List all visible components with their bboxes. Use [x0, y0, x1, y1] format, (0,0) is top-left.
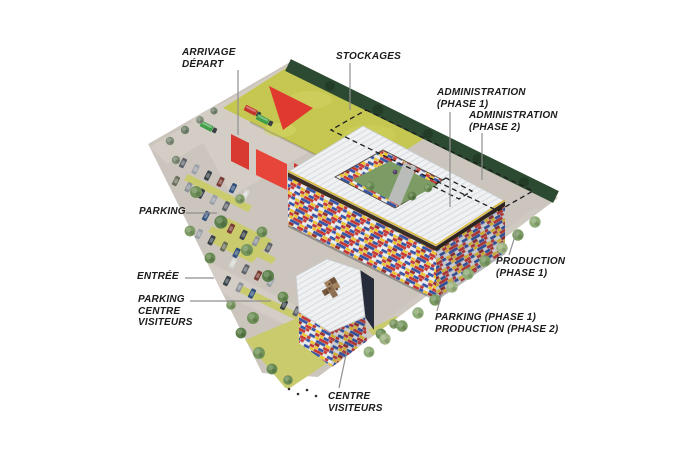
label-centre-visiteurs: CENTRE VISITEURS — [328, 391, 383, 414]
label-entree: ENTRÉE — [137, 271, 179, 283]
tree-icon — [408, 192, 417, 201]
tree-icon — [210, 107, 217, 114]
tree-icon — [479, 255, 490, 266]
tree-icon — [278, 292, 289, 303]
tree-icon — [267, 364, 278, 375]
tree-icon — [185, 226, 196, 237]
tree-icon — [364, 347, 375, 358]
tree-icon — [196, 116, 204, 124]
tree-icon — [462, 268, 473, 279]
tree-icon — [424, 184, 432, 192]
tree-icon — [214, 215, 227, 228]
tree-icon — [412, 307, 423, 318]
tree-icon — [253, 347, 265, 359]
tree-icon — [262, 270, 274, 282]
tree-icon — [379, 333, 390, 344]
label-parking: PARKING — [139, 206, 186, 218]
tree-icon — [393, 170, 398, 175]
tree-icon — [247, 312, 259, 324]
tree-icon — [205, 253, 216, 264]
label-production-phase1: PRODUCTION (PHASE 1) — [496, 256, 565, 279]
tree-icon — [529, 216, 540, 227]
tree-icon — [172, 156, 180, 164]
tree-icon — [236, 328, 247, 339]
tree-icon — [241, 244, 253, 256]
label-parking-centre-visiteurs: PARKING CENTRE VISITEURS — [138, 294, 193, 329]
tree-icon — [365, 181, 375, 191]
tree-icon — [166, 137, 174, 145]
label-arrivage-depart: ARRIVAGE DÉPART — [182, 47, 236, 70]
tree-icon — [496, 242, 507, 253]
label-parking-production: PARKING (PHASE 1) PRODUCTION (PHASE 2) — [435, 312, 558, 335]
tree-icon — [181, 126, 189, 134]
tree-icon — [190, 186, 202, 198]
tree-icon — [446, 281, 457, 292]
tree-icon — [257, 227, 268, 238]
tree-icon — [226, 300, 236, 310]
label-administration-phase1: ADMINISTRATION (PHASE 1) — [437, 87, 526, 110]
label-administration-phase2: ADMINISTRATION (PHASE 2) — [469, 110, 558, 133]
site-plan-figure: ARRIVAGE DÉPART STOCKAGES ADMINISTRATION… — [0, 0, 700, 469]
tree-icon — [283, 375, 293, 385]
pedestrian-dots — [288, 388, 318, 398]
tree-icon — [396, 320, 407, 331]
tree-icon — [235, 194, 245, 204]
label-stockages: STOCKAGES — [336, 51, 401, 63]
